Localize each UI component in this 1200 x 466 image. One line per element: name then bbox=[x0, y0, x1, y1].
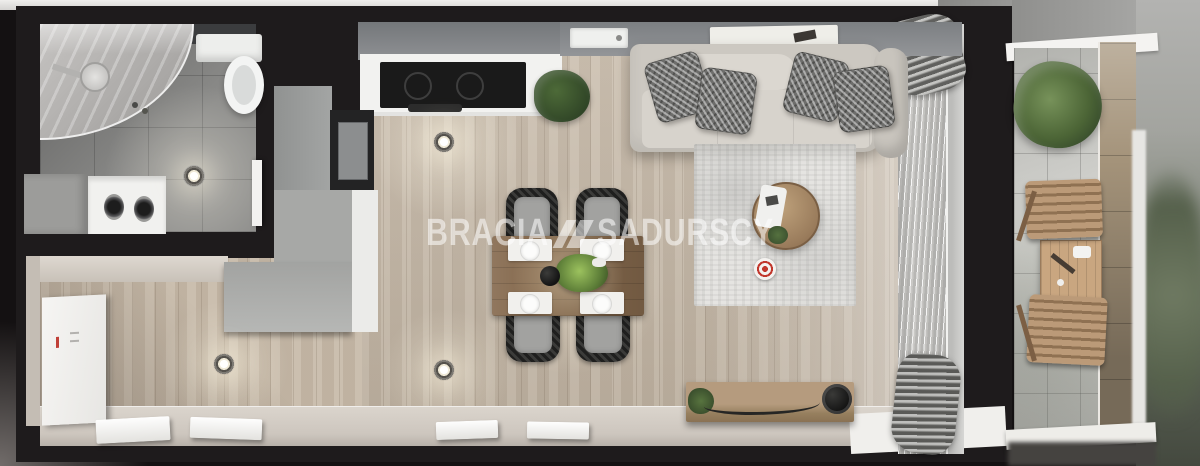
cup-icon bbox=[1073, 246, 1091, 258]
entrance-door bbox=[42, 294, 106, 425]
watermark-logo-icon bbox=[559, 220, 586, 248]
cooktop bbox=[380, 62, 526, 108]
washer-door-icon bbox=[104, 194, 124, 220]
floor-plan-render: BRACIA SADURSCY bbox=[0, 0, 1200, 466]
dryer-door-icon bbox=[134, 196, 154, 222]
cabinet-side-face bbox=[352, 190, 378, 332]
bathroom-cabinet bbox=[24, 174, 88, 234]
plate-icon bbox=[520, 294, 540, 314]
burner-icon bbox=[456, 72, 484, 100]
shower-wet-glass bbox=[40, 24, 192, 54]
place-setting bbox=[580, 292, 624, 314]
utensil-tray bbox=[408, 104, 462, 112]
speaker bbox=[822, 384, 852, 414]
bathroom-door bbox=[252, 160, 262, 226]
left-wall-face bbox=[26, 256, 40, 426]
teapot bbox=[540, 266, 560, 286]
doormat bbox=[436, 420, 499, 440]
balcony-chair bbox=[1025, 179, 1103, 240]
hallway-wardrobe bbox=[224, 262, 352, 332]
place-setting bbox=[508, 292, 552, 314]
shower-head bbox=[80, 62, 110, 92]
toilet-bowl bbox=[224, 56, 264, 114]
balcony-below-blur bbox=[1008, 442, 1156, 466]
shower-bottles bbox=[132, 102, 138, 108]
living-downlight bbox=[433, 359, 455, 381]
oven-column bbox=[330, 110, 374, 190]
kitchen-downlight bbox=[433, 131, 455, 153]
small-bowl bbox=[592, 258, 606, 267]
sofa-pillow bbox=[832, 64, 896, 133]
watermark: BRACIA SADURSCY bbox=[426, 212, 774, 255]
doormat bbox=[527, 421, 589, 439]
hallway-downlight bbox=[213, 353, 235, 375]
watermark-text-left: BRACIA bbox=[426, 212, 549, 255]
plate-icon bbox=[592, 294, 612, 314]
kitchen-sink bbox=[570, 28, 628, 48]
sofa-pillow bbox=[694, 66, 758, 135]
bathroom-south-wall-face bbox=[40, 256, 228, 282]
curtain-bunch-bottom bbox=[889, 351, 963, 457]
tray-item bbox=[793, 29, 816, 42]
balcony-wall-sliver bbox=[1132, 130, 1146, 440]
burner-icon bbox=[404, 72, 432, 100]
watermark-text-right: SADURSCY bbox=[597, 212, 774, 255]
door-red-detail bbox=[56, 337, 59, 348]
tall-cabinet bbox=[274, 86, 332, 190]
door-handle-icon bbox=[70, 332, 79, 334]
doormat bbox=[95, 416, 170, 444]
coaster-icon bbox=[1057, 279, 1064, 286]
kitchen-plant bbox=[534, 70, 590, 122]
outside-tree-blur bbox=[1138, 170, 1200, 420]
faucet-icon bbox=[616, 35, 622, 41]
balcony-side-wall bbox=[1098, 42, 1136, 436]
lower-cabinet bbox=[274, 190, 352, 264]
utensil-icon bbox=[1050, 253, 1075, 274]
washer-dryer bbox=[88, 176, 166, 234]
doormat bbox=[190, 417, 263, 441]
oven-front bbox=[338, 122, 368, 180]
bathroom-downlight bbox=[183, 165, 205, 187]
red-stool bbox=[754, 258, 776, 280]
toilet-seat bbox=[232, 65, 256, 105]
balcony-chair bbox=[1026, 294, 1107, 366]
